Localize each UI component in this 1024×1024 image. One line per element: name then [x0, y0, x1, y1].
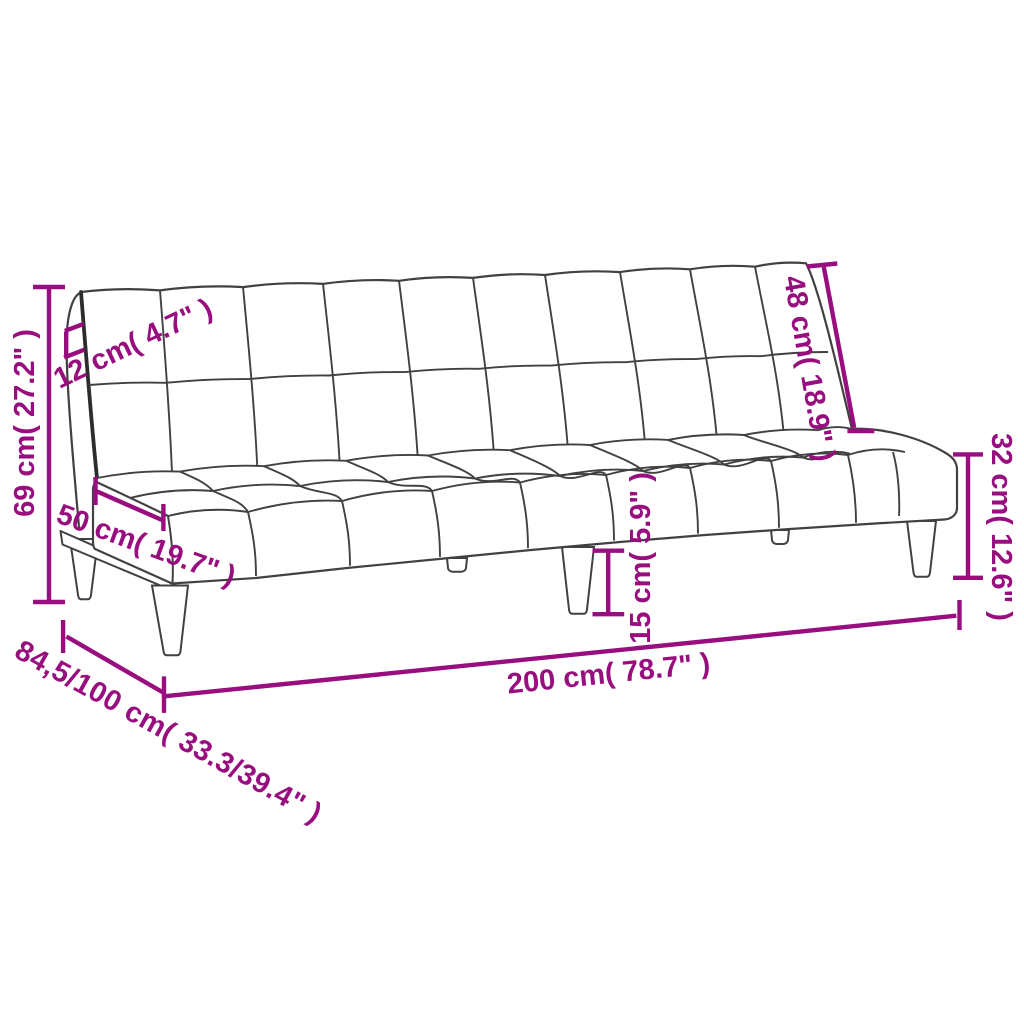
svg-text:32 cm( 12.6" ): 32 cm( 12.6" ): [985, 433, 1017, 621]
svg-text:69 cm( 27.2" ): 69 cm( 27.2" ): [9, 329, 41, 517]
svg-text:15 cm( 5.9" ): 15 cm( 5.9" ): [625, 472, 657, 644]
